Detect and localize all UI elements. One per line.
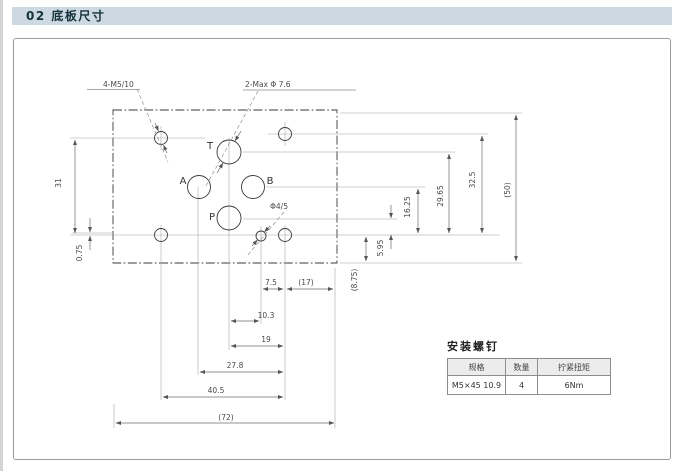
callout-mount-holes: 4-M5/10 xyxy=(103,80,134,89)
dim-label-29-65: 29.65 xyxy=(436,185,445,207)
port-a-hole xyxy=(188,176,211,199)
col-header-spec: 规格 xyxy=(448,359,506,376)
dim-label-72: (72) xyxy=(218,413,233,422)
ports xyxy=(188,140,265,230)
dim-label-40-5: 40.5 xyxy=(208,386,225,395)
screw-table: 规格 数量 拧紧扭矩 M5×45 10.9 4 6Nm xyxy=(447,358,611,395)
dim-label-50: (50) xyxy=(503,182,512,197)
plate-outline xyxy=(113,110,337,263)
dim-label-27-8: 27.8 xyxy=(227,361,244,370)
col-header-qty: 数量 xyxy=(506,359,538,376)
dim-label-0-75: 0.75 xyxy=(75,244,84,261)
cell-torque: 6Nm xyxy=(538,376,611,395)
dim-label-32-5: 32.5 xyxy=(468,171,477,188)
callout-leaders xyxy=(87,89,356,256)
port-label-t: T xyxy=(206,141,214,152)
dim-label-31: 31 xyxy=(54,178,63,188)
screw-table-title: 安装螺钉 xyxy=(447,338,617,354)
cell-qty: 4 xyxy=(506,376,538,395)
screw-table-header-row: 规格 数量 拧紧扭矩 xyxy=(448,359,611,376)
callout-max-holes: 2-Max Φ 7.6 xyxy=(245,80,291,89)
port-b-hole xyxy=(242,176,265,199)
dim-label-10-3: 10.3 xyxy=(258,311,275,320)
port-label-p: P xyxy=(209,212,215,223)
dimension-drawing: T A B P 4-M5/10 2-Max Φ 7.6 Φ4/5 xyxy=(0,0,680,471)
screw-table-data-row: M5×45 10.9 4 6Nm xyxy=(448,376,611,395)
col-header-torque: 拧紧扭矩 xyxy=(538,359,611,376)
callout-pilot-hole: Φ4/5 xyxy=(270,202,288,211)
port-label-a: A xyxy=(180,176,187,187)
mounting-screw-block: 安装螺钉 规格 数量 拧紧扭矩 M5×45 10.9 4 6Nm xyxy=(447,338,617,395)
port-label-b: B xyxy=(267,176,274,187)
dim-label-7-5: 7.5 xyxy=(265,278,277,287)
dim-label-5-95: 5.95 xyxy=(376,239,385,256)
dim-label-8-75: (8.75) xyxy=(350,269,359,292)
dim-label-17: (17) xyxy=(298,278,313,287)
dim-label-16-25: 16.25 xyxy=(403,196,412,218)
cell-spec: M5×45 10.9 xyxy=(448,376,506,395)
dim-label-19: 19 xyxy=(261,335,271,344)
